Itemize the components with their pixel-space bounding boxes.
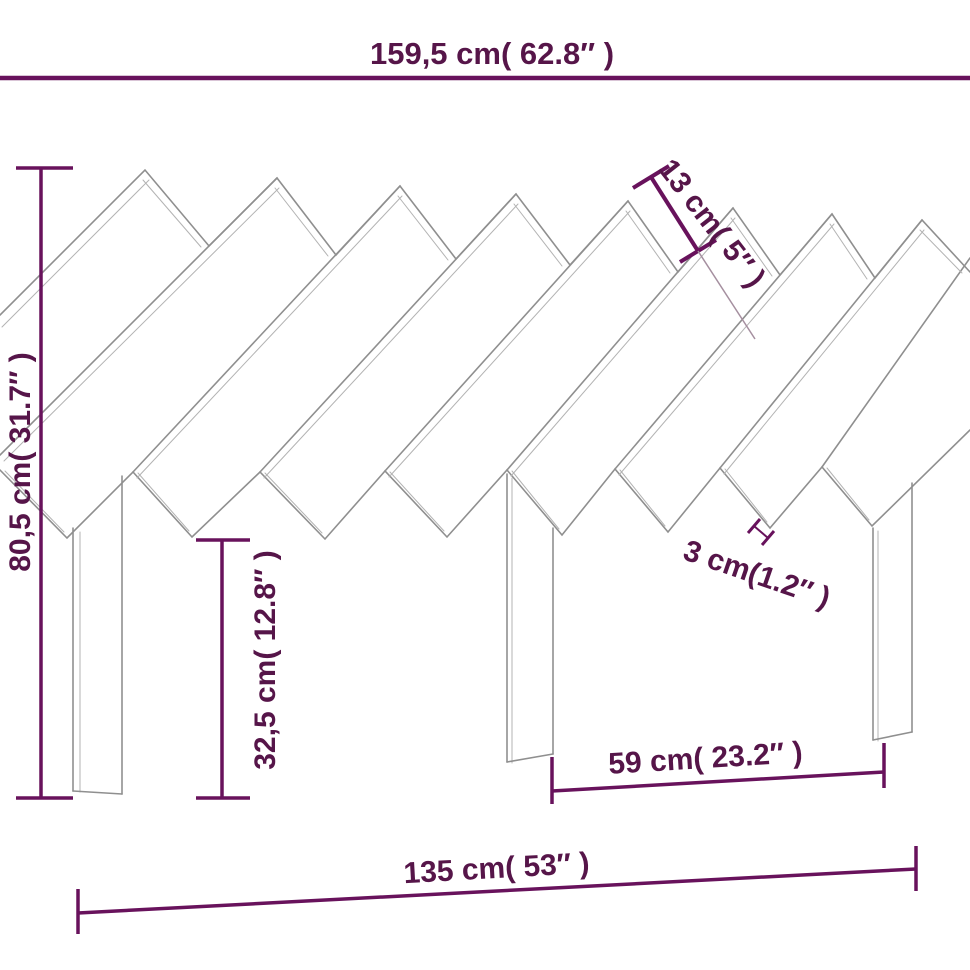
slat-fold-lines — [0, 178, 970, 472]
dim-slat-thickness-label: 3 cm(1.2″ ) — [679, 534, 834, 615]
headboard-drawing — [0, 170, 970, 794]
dim-leg-height — [196, 540, 250, 798]
dimension-annotations — [0, 78, 970, 934]
slat-endcut-edges-bottom — [5, 468, 869, 533]
slat-bottom-edge — [0, 430, 970, 539]
dimension-diagram: 159,5 cm( 62.8″ ) 80,5 cm( 31.7″ ) 32,5 … — [0, 0, 970, 970]
dim-left-height-label: 80,5 cm( 31.7″ ) — [4, 352, 37, 572]
dim-leg-height-label: 32,5 cm( 12.8″ ) — [249, 550, 282, 770]
slat-endcut-edges-top — [143, 180, 962, 279]
dim-slat-thickness-marker — [748, 519, 774, 545]
slat-top-edge — [0, 170, 970, 315]
dim-leg-spacing-label: 59 cm( 23.2″ ) — [607, 736, 803, 781]
slat-thickness-edges — [2, 180, 924, 478]
dim-base-width-label: 135 cm( 53″ ) — [403, 847, 591, 890]
right-leg — [873, 483, 912, 741]
dim-top-width-label: 159,5 cm( 62.8″ ) — [370, 36, 614, 71]
headboard-dimension-drawing: 159,5 cm( 62.8″ ) 80,5 cm( 31.7″ ) 32,5 … — [0, 0, 970, 970]
